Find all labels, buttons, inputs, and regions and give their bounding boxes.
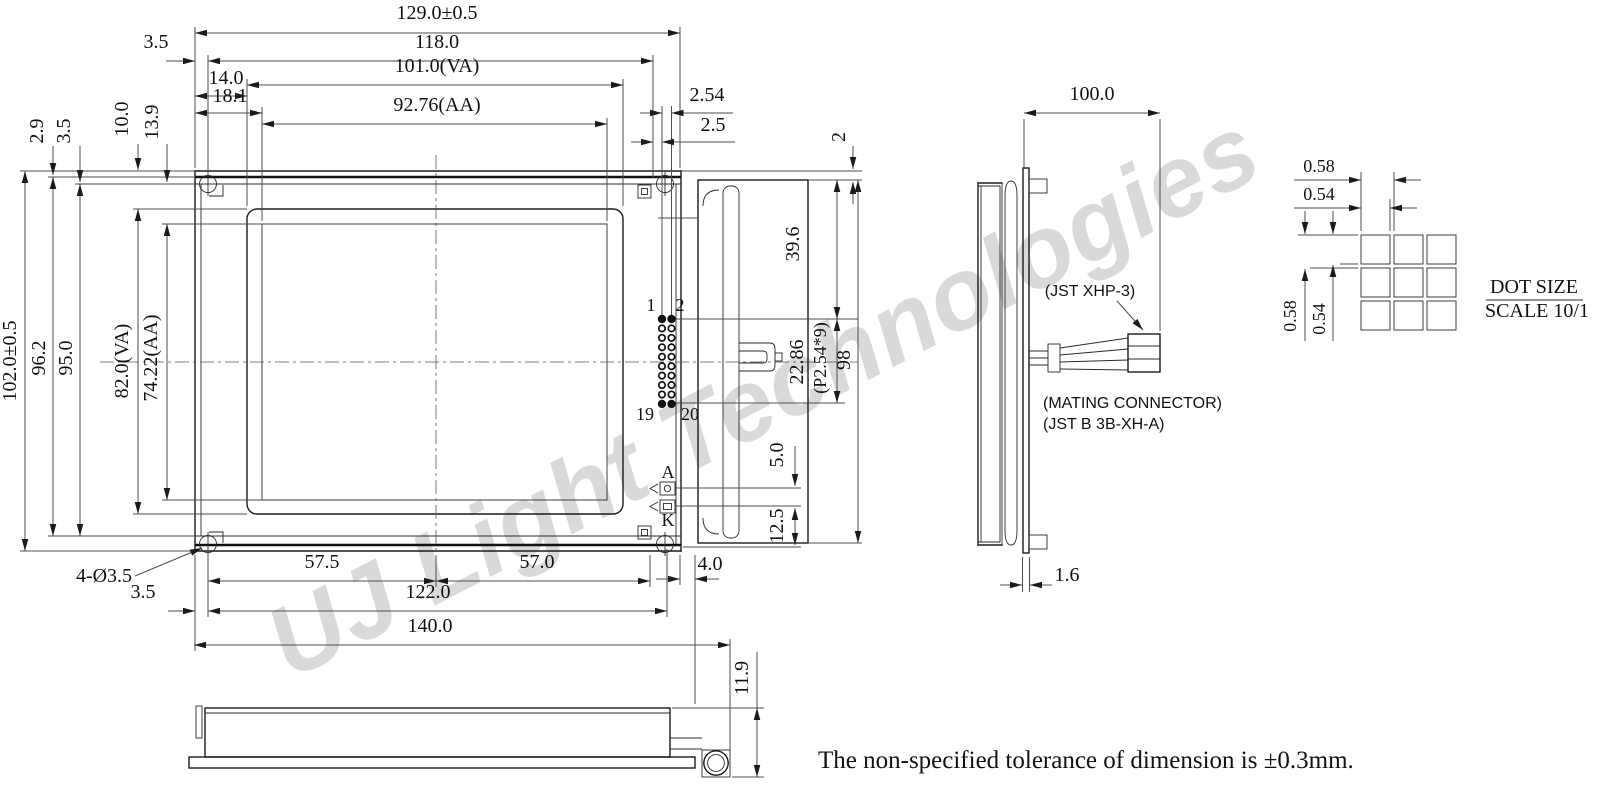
dim-va-top-offset: 10.0 xyxy=(111,102,133,137)
pin-2-label: 2 xyxy=(676,295,685,315)
dim-profile-top: 39.6 xyxy=(782,227,804,262)
dim-pin-edge: 2.5 xyxy=(701,114,726,136)
dim-profile-overall: 98 xyxy=(833,350,855,370)
dim-pitch-note: (P2.54*9) xyxy=(810,322,831,394)
mating-connector-label-1: (MATING CONNECTOR) xyxy=(1043,395,1222,412)
dot-size-detail: 0.58 0.54 0.58 0.54 DOT SIZE SCALE 10/1 xyxy=(1280,156,1589,341)
anode-label: A xyxy=(662,462,675,482)
dim-va-height: 82.0(VA) xyxy=(111,324,133,399)
dim-dot-width: 0.54 xyxy=(1303,184,1335,204)
dim-aa-height: 74.22(AA) xyxy=(140,314,162,401)
mating-connector-label-2: (JST B 3B-XH-A) xyxy=(1043,416,1165,433)
pin-20-label: 20 xyxy=(681,404,699,424)
lcd-module-mechanical-drawing: UJ Light Technologies xyxy=(0,0,1600,800)
dim-frame-height: 96.2 xyxy=(28,341,50,376)
front-top-dimensions: 129.0±0.5 118.0 3.5 101.0(VA) 14.0 92.76… xyxy=(144,2,736,315)
dim-edge-offset-bottom: 3.5 xyxy=(131,581,156,603)
pin-1-label: 1 xyxy=(647,295,656,315)
pcb-strip xyxy=(189,757,695,768)
dim-module-thickness: 11.9 xyxy=(731,661,753,695)
dim-pcb-thickness: 1.6 xyxy=(1055,564,1080,586)
dim-inner-height: 95.0 xyxy=(55,341,77,376)
dot-size-scale: SCALE 10/1 xyxy=(1485,300,1589,322)
dim-overall-height: 102.0±0.5 xyxy=(0,321,21,402)
dim-lip: 2.9 xyxy=(26,119,48,144)
dim-cable-length: 100.0 xyxy=(1070,83,1115,105)
dim-right-span: 57.0 xyxy=(520,551,555,573)
cathode-label: K xyxy=(662,510,675,530)
dim-dot-pitch-h: 0.58 xyxy=(1303,156,1335,176)
dot-grid xyxy=(1361,235,1456,330)
dim-led-edge: 12.5 xyxy=(766,509,788,544)
dim-dot-pitch-v: 0.58 xyxy=(1280,300,1300,332)
bottom-view xyxy=(189,706,730,777)
pin-19-label: 19 xyxy=(636,404,654,424)
bottom-view-dimensions: 11.9 xyxy=(672,652,764,777)
dim-lip2: 3.5 xyxy=(53,119,75,144)
dim-led-spacing: 5.0 xyxy=(766,443,788,468)
dim-overall-width: 129.0±0.5 xyxy=(397,2,478,24)
dim-hole-span: 122.0 xyxy=(406,581,451,603)
tolerance-note: The non-specified tolerance of dimension… xyxy=(818,747,1354,774)
dim-left-span: 57.5 xyxy=(305,551,340,573)
dim-edge-offset-top: 3.5 xyxy=(144,31,169,53)
jst-connector xyxy=(1128,334,1160,372)
dim-aa-offset: 18.1 xyxy=(213,85,248,107)
jst-connector-label: (JST XHP-3) xyxy=(1045,283,1135,300)
dim-profile-pins: 22.86 xyxy=(786,340,808,385)
dim-mounting-holes: 4-Ø3.5 xyxy=(76,565,132,587)
dim-aa-top-offset: 13.9 xyxy=(141,105,163,140)
dim-aa-width: 92.76(AA) xyxy=(393,94,480,116)
dim-pin-pitch: 2.54 xyxy=(690,84,725,106)
dot-size-title: DOT SIZE xyxy=(1490,276,1578,298)
dim-dot-height: 0.54 xyxy=(1309,303,1329,335)
backlight-cable xyxy=(1029,334,1160,372)
dim-overall-length: 140.0 xyxy=(408,615,453,637)
front-left-dimensions: 102.0±0.5 96.2 95.0 82.0(VA) 74.22(AA) 2… xyxy=(0,102,262,552)
dim-va-width: 101.0(VA) xyxy=(395,55,480,77)
dim-board-width: 118.0 xyxy=(415,31,459,53)
dim-tab: 4.0 xyxy=(698,553,723,575)
dim-profile-lip: 2 xyxy=(828,132,850,142)
